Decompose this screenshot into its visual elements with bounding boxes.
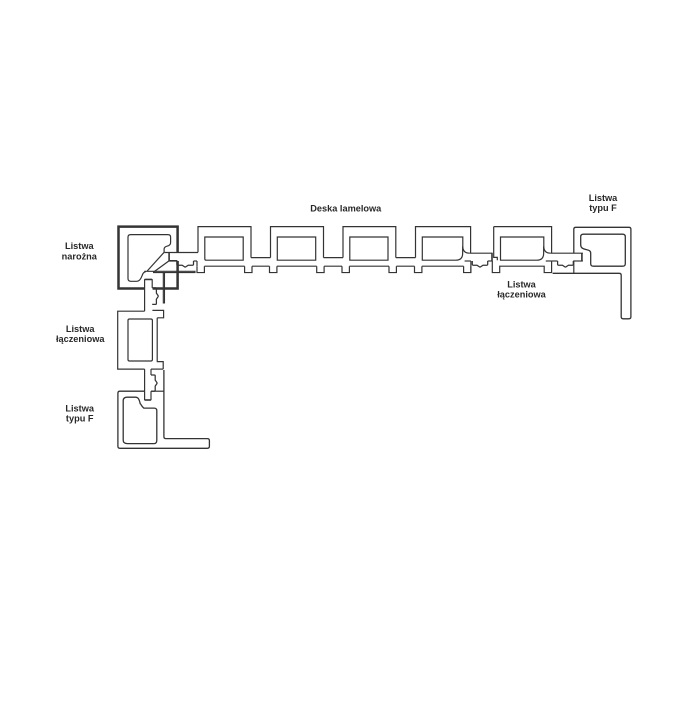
svg-text:typu F: typu F	[589, 203, 617, 213]
svg-text:Listwa: Listwa	[65, 403, 94, 413]
svg-text:Listwa: Listwa	[507, 279, 536, 289]
svg-text:Deska lamelowa: Deska lamelowa	[310, 204, 382, 214]
svg-text:typu F: typu F	[66, 413, 94, 423]
svg-text:łączeniowa: łączeniowa	[497, 290, 546, 300]
svg-text:Listwa: Listwa	[589, 193, 618, 203]
svg-text:narożna: narożna	[62, 251, 98, 261]
svg-text:Listwa: Listwa	[65, 241, 94, 251]
svg-text:Listwa: Listwa	[66, 324, 95, 334]
svg-text:łączeniowa: łączeniowa	[56, 334, 105, 344]
